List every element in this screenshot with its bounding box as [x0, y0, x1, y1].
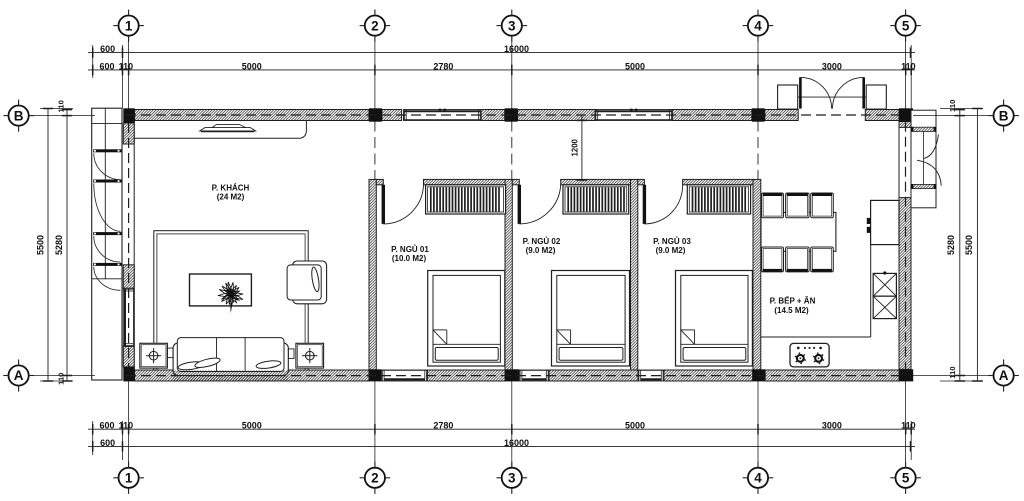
svg-text:5280: 5280 — [946, 235, 956, 255]
svg-text:3: 3 — [508, 471, 516, 486]
svg-text:5280: 5280 — [54, 235, 64, 255]
svg-text:110: 110 — [901, 421, 916, 431]
svg-text:(9.0 M2): (9.0 M2) — [526, 246, 556, 255]
svg-text:5: 5 — [902, 471, 910, 486]
svg-text:5000: 5000 — [242, 61, 262, 71]
svg-text:3000: 3000 — [822, 421, 842, 431]
svg-text:1200: 1200 — [571, 138, 580, 156]
svg-text:P. NGỦ 03: P. NGỦ 03 — [653, 237, 691, 246]
svg-text:P. KHÁCH: P. KHÁCH — [212, 183, 250, 192]
svg-text:2780: 2780 — [433, 61, 453, 71]
svg-text:3000: 3000 — [822, 61, 842, 71]
svg-text:5500: 5500 — [35, 235, 45, 255]
svg-text:110: 110 — [119, 61, 134, 71]
svg-text:P. BẾP + ĂN: P. BẾP + ĂN — [770, 296, 816, 306]
svg-text:1: 1 — [125, 471, 133, 486]
svg-text:P. NGỦ 02: P. NGỦ 02 — [523, 237, 561, 246]
svg-text:600: 600 — [100, 44, 115, 54]
svg-text:110: 110 — [901, 61, 916, 71]
svg-text:600: 600 — [100, 438, 115, 448]
svg-text:B: B — [999, 108, 1009, 123]
svg-text:110: 110 — [119, 421, 134, 431]
svg-text:5500: 5500 — [964, 235, 974, 255]
svg-text:600: 600 — [99, 61, 114, 71]
svg-text:16000: 16000 — [504, 438, 529, 448]
svg-text:P. NGỦ 01: P. NGỦ 01 — [391, 245, 429, 254]
svg-text:(9.0 M2): (9.0 M2) — [656, 246, 686, 255]
svg-text:(10.0 M2): (10.0 M2) — [392, 254, 427, 263]
svg-text:110: 110 — [948, 366, 957, 378]
svg-text:2780: 2780 — [433, 421, 453, 431]
svg-text:5: 5 — [902, 18, 910, 33]
svg-text:110: 110 — [56, 373, 65, 385]
svg-text:5000: 5000 — [625, 61, 645, 71]
svg-text:4: 4 — [754, 471, 762, 486]
svg-text:A: A — [999, 368, 1009, 383]
svg-text:4: 4 — [754, 18, 762, 33]
svg-text:2: 2 — [371, 471, 379, 486]
svg-text:5000: 5000 — [242, 421, 262, 431]
svg-text:3: 3 — [508, 18, 516, 33]
svg-text:2: 2 — [371, 18, 379, 33]
svg-text:110: 110 — [56, 100, 65, 112]
svg-text:(24 M2): (24 M2) — [217, 193, 245, 202]
svg-text:1: 1 — [125, 18, 133, 33]
svg-text:110: 110 — [948, 100, 957, 112]
svg-text:600: 600 — [99, 421, 114, 431]
svg-text:B: B — [14, 108, 24, 123]
svg-text:16000: 16000 — [504, 44, 529, 54]
svg-text:5000: 5000 — [625, 421, 645, 431]
svg-text:A: A — [14, 368, 24, 383]
svg-text:(14.5 M2): (14.5 M2) — [774, 306, 809, 315]
